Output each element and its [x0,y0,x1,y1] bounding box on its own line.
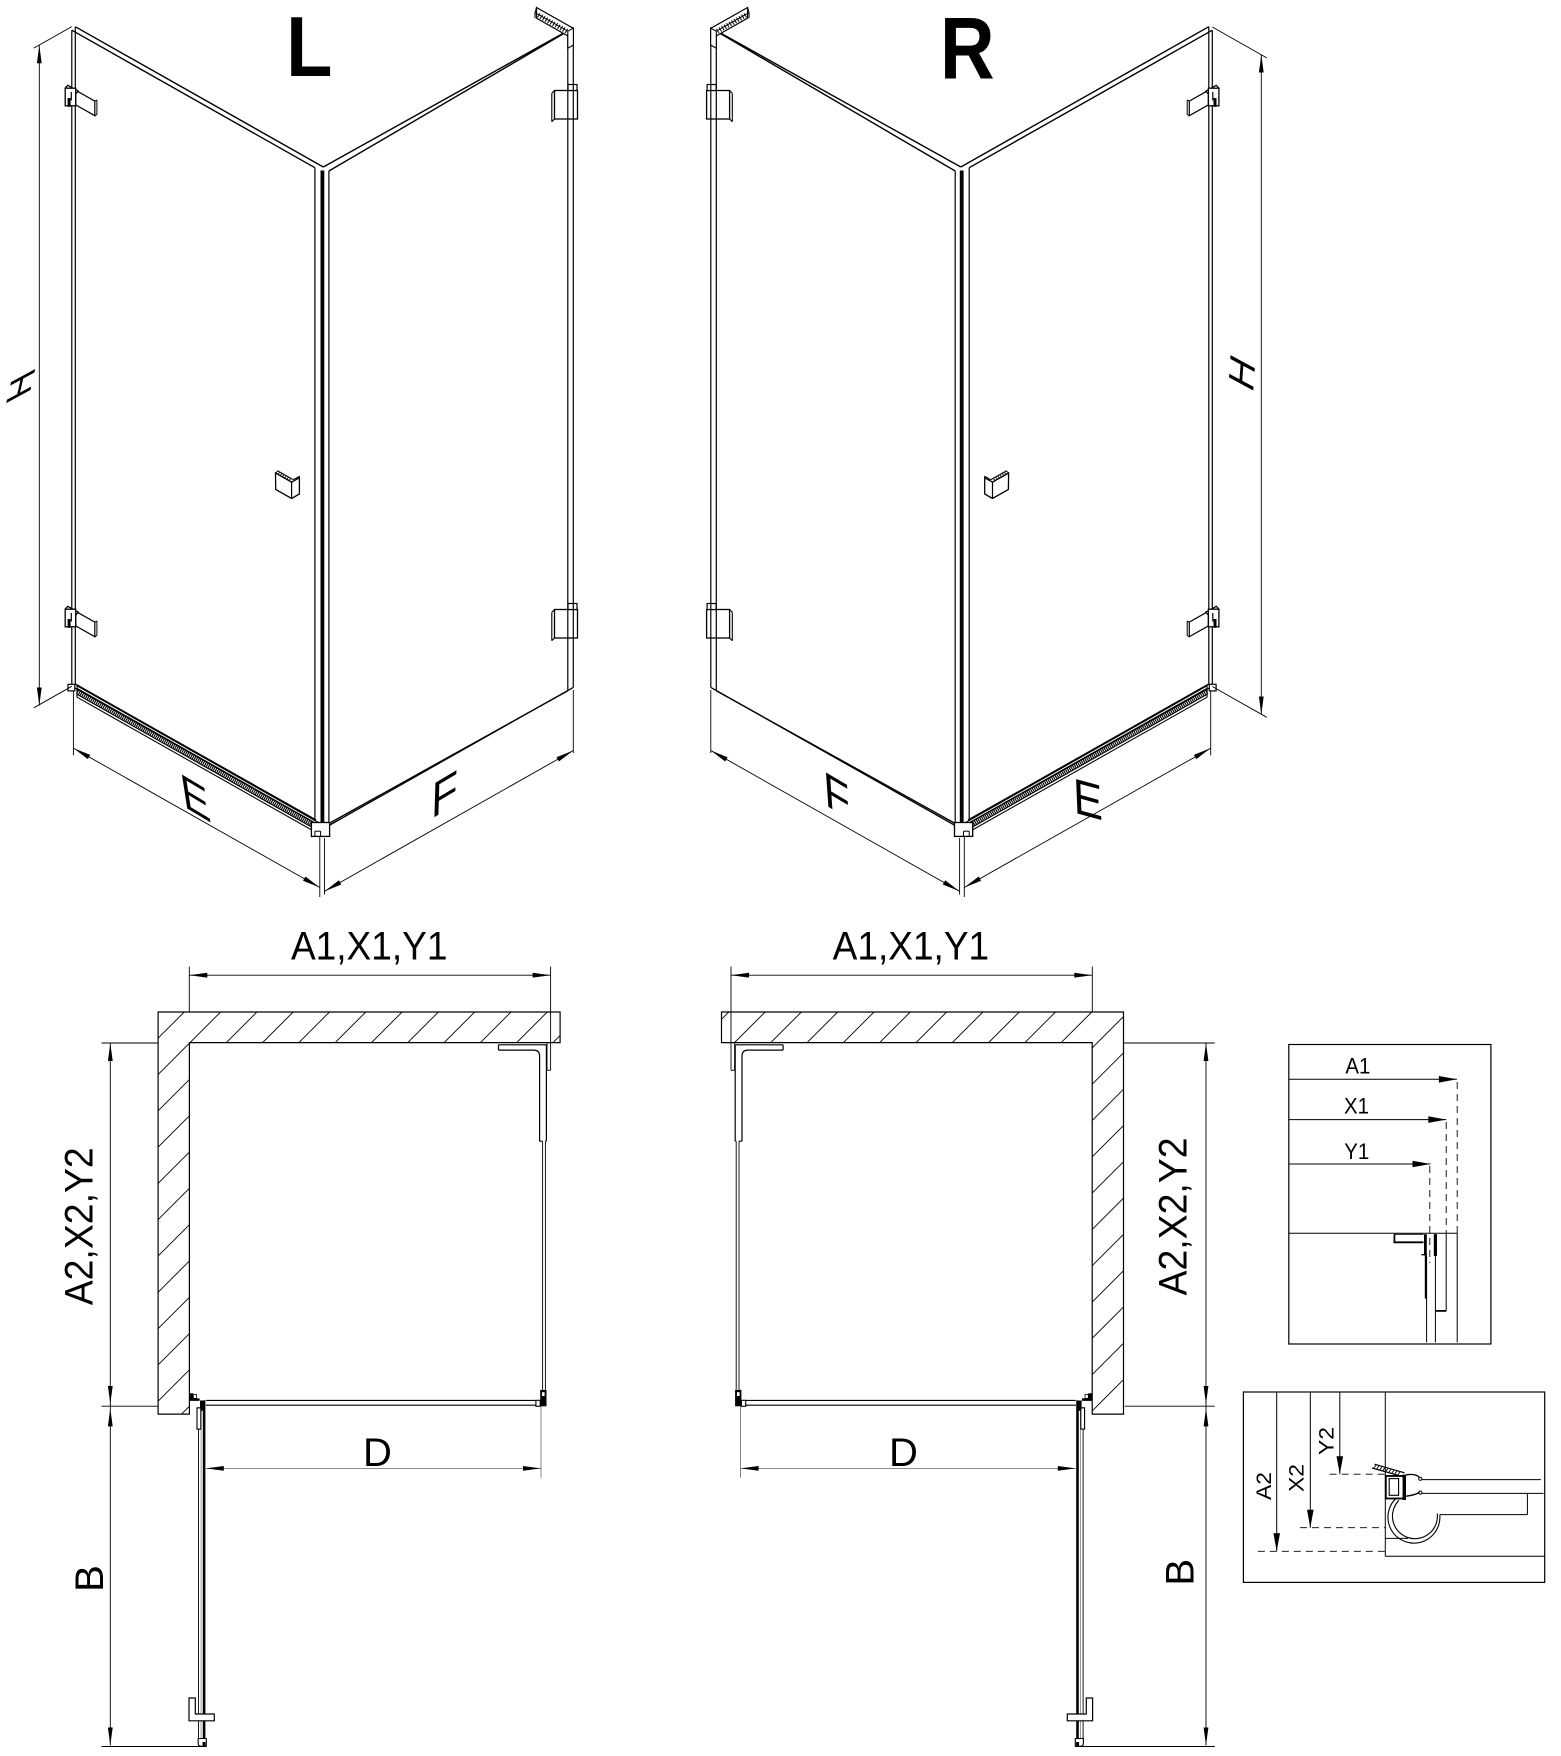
svg-text:X2: X2 [1286,1464,1309,1492]
svg-text:L: L [286,0,332,95]
svg-text:X1: X1 [1344,1093,1369,1118]
svg-text:A2,X2,Y2: A2,X2,Y2 [57,1147,101,1305]
svg-text:D: D [363,1431,392,1475]
svg-text:D: D [889,1431,918,1475]
svg-text:A2,X2,Y2: A2,X2,Y2 [1152,1138,1196,1296]
svg-text:E: E [1072,769,1104,832]
svg-text:A1,X1,Y1: A1,X1,Y1 [833,925,990,969]
svg-text:B: B [1159,1559,1203,1586]
svg-text:A1: A1 [1345,1053,1370,1078]
svg-text:A1,X1,Y1: A1,X1,Y1 [291,925,448,969]
svg-text:R: R [940,0,995,97]
svg-text:Y2: Y2 [1316,1427,1339,1455]
svg-text:B: B [68,1565,112,1592]
svg-text:A2: A2 [1253,1472,1276,1500]
svg-text:Y1: Y1 [1344,1139,1369,1164]
